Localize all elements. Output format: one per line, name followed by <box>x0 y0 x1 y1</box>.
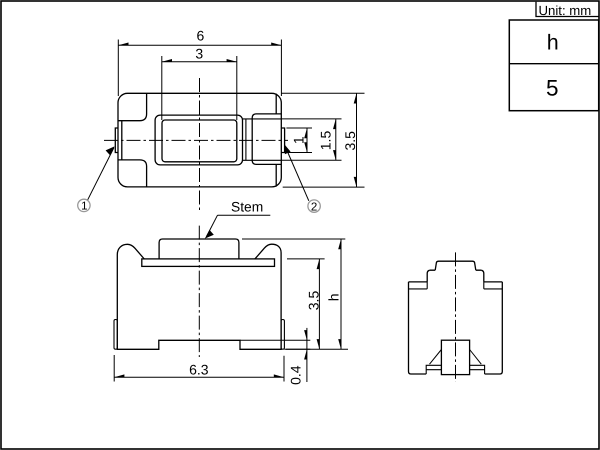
svg-text:6.3: 6.3 <box>189 361 209 377</box>
svg-text:5: 5 <box>546 75 559 100</box>
svg-text:3.5: 3.5 <box>305 291 321 311</box>
svg-text:1: 1 <box>81 201 87 213</box>
svg-text:3: 3 <box>195 46 203 62</box>
svg-text:h: h <box>326 294 342 302</box>
svg-text:6: 6 <box>197 28 205 44</box>
svg-text:Stem: Stem <box>231 199 263 214</box>
svg-text:2: 2 <box>311 201 317 213</box>
svg-text:1: 1 <box>291 136 307 144</box>
svg-text:Unit: mm: Unit: mm <box>539 3 592 18</box>
svg-text:3.5: 3.5 <box>342 131 358 151</box>
svg-text:0.4: 0.4 <box>288 365 304 385</box>
svg-text:h: h <box>547 30 559 54</box>
svg-text:1.5: 1.5 <box>318 131 334 151</box>
